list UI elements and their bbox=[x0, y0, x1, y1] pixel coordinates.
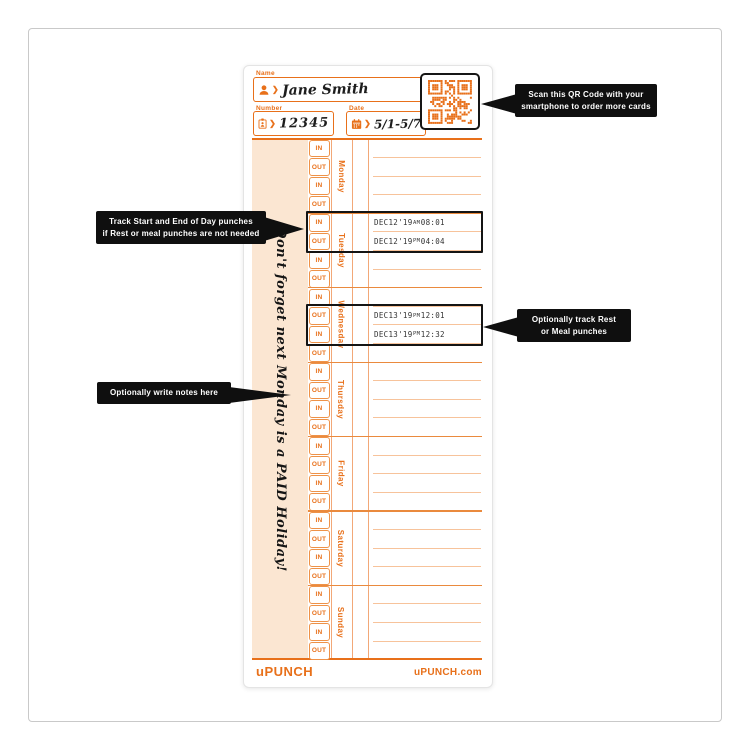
highlight-box bbox=[306, 304, 483, 345]
punch-cell-label: OUT bbox=[309, 270, 330, 288]
row-line bbox=[373, 380, 481, 381]
punch-cell-label: OUT bbox=[309, 642, 330, 660]
punch-cell-label: IN bbox=[309, 400, 330, 418]
row-line bbox=[373, 603, 481, 604]
brand-logo: uPUNCH bbox=[256, 664, 313, 679]
punch-cell-label: OUT bbox=[309, 493, 330, 511]
callout-notes: Optionally write notes here bbox=[97, 382, 231, 404]
day-name: Saturday bbox=[331, 511, 351, 585]
row-line bbox=[373, 399, 481, 400]
name-field: ❯ Jane Smith bbox=[253, 77, 426, 102]
row-line bbox=[373, 566, 481, 567]
row-line bbox=[373, 641, 481, 642]
punch-cell-label: IN bbox=[309, 475, 330, 493]
punch-cell-label: IN bbox=[309, 140, 330, 158]
day-block: INOUTINOUTFriday bbox=[308, 437, 482, 511]
punch-cell-label: OUT bbox=[309, 568, 330, 586]
day-block: INOUTINOUTThursday bbox=[308, 362, 482, 436]
time-card: Name ❯ Jane Smith Number ❯ 12345 Date bbox=[243, 65, 493, 688]
punch-cell-label: OUT bbox=[309, 158, 330, 176]
notes-handwriting: Don't forget next Monday is a PAID Holid… bbox=[273, 227, 288, 572]
punch-cell-label: OUT bbox=[309, 530, 330, 548]
day-name-label: Sunday bbox=[337, 607, 346, 638]
name-value: Jane Smith bbox=[282, 81, 369, 99]
row-line bbox=[373, 622, 481, 623]
punch-cell-label: IN bbox=[309, 512, 330, 530]
qr-code bbox=[428, 80, 472, 124]
day-name: Friday bbox=[331, 437, 351, 511]
day-block: INOUTINOUTSaturday bbox=[308, 511, 482, 585]
punch-cell-label: OUT bbox=[309, 382, 330, 400]
number-field: ❯ 12345 bbox=[253, 111, 334, 136]
punch-cell-label: IN bbox=[309, 586, 330, 604]
row-line bbox=[373, 417, 481, 418]
punch-cell-label: IN bbox=[309, 177, 330, 195]
qr-code-frame bbox=[420, 73, 480, 130]
callout-line: if Rest or meal punches are not needed bbox=[100, 228, 262, 240]
callout-line: or Meal punches bbox=[521, 326, 627, 338]
punch-cell-label: OUT bbox=[309, 605, 330, 623]
punch-cell-label: OUT bbox=[309, 456, 330, 474]
name-field-label: Name bbox=[256, 70, 275, 77]
punch-cell-label: IN bbox=[309, 251, 330, 269]
day-block: INOUTINOUTSunday bbox=[308, 585, 482, 659]
callout-line: smartphone to order more cards bbox=[519, 101, 653, 113]
day-name: Monday bbox=[331, 139, 351, 213]
punch-cell-label: IN bbox=[309, 549, 330, 567]
number-value: 12345 bbox=[279, 115, 330, 131]
row-line bbox=[373, 269, 481, 270]
row-line bbox=[373, 492, 481, 493]
punch-cell-label: IN bbox=[309, 363, 330, 381]
row-line bbox=[373, 455, 481, 456]
product-image: Name ❯ Jane Smith Number ❯ 12345 Date bbox=[0, 0, 750, 750]
punch-cell-label: IN bbox=[309, 623, 330, 641]
punch-cell-label: OUT bbox=[309, 344, 330, 362]
row-line bbox=[373, 548, 481, 549]
punch-cell-label: OUT bbox=[309, 419, 330, 437]
day-block: INOUTINOUTMonday bbox=[308, 139, 482, 213]
person-icon bbox=[258, 84, 270, 96]
callout-rest-punches: Optionally track Rest or Meal punches bbox=[517, 309, 631, 342]
punch-grid: Don't forget next Monday is a PAID Holid… bbox=[244, 139, 490, 660]
punch-cell-label: IN bbox=[309, 437, 330, 455]
callout-qr-code: Scan this QR Code with your smartphone t… bbox=[515, 84, 657, 117]
brand-website: uPUNCH.com bbox=[414, 667, 482, 678]
date-field: ❯ 5/1-5/7 bbox=[346, 111, 426, 136]
day-name-label: Saturday bbox=[337, 529, 346, 566]
row-line bbox=[373, 529, 481, 530]
callout-line: Optionally write notes here bbox=[101, 387, 227, 399]
callout-line: Optionally track Rest bbox=[521, 314, 627, 326]
callout-line: Track Start and End of Day punches bbox=[100, 216, 262, 228]
day-name: Sunday bbox=[331, 585, 351, 659]
chevron-divider-icon: ❯ bbox=[364, 119, 371, 128]
highlight-box bbox=[306, 211, 483, 252]
day-name-label: Monday bbox=[337, 160, 346, 193]
chevron-divider-icon: ❯ bbox=[272, 85, 279, 94]
date-value: 5/1-5/7 bbox=[374, 116, 421, 131]
calendar-icon bbox=[351, 118, 362, 130]
row-line bbox=[373, 157, 481, 158]
day-name: Thursday bbox=[331, 362, 351, 436]
badge-icon bbox=[258, 117, 267, 130]
row-line bbox=[373, 194, 481, 195]
row-line bbox=[373, 176, 481, 177]
callout-track-punches: Track Start and End of Day punches if Re… bbox=[96, 211, 266, 244]
row-line bbox=[373, 473, 481, 474]
day-name-label: Friday bbox=[337, 461, 346, 487]
day-name-label: Thursday bbox=[337, 380, 346, 419]
callout-line: Scan this QR Code with your bbox=[519, 89, 653, 101]
chevron-divider-icon: ❯ bbox=[269, 119, 276, 128]
